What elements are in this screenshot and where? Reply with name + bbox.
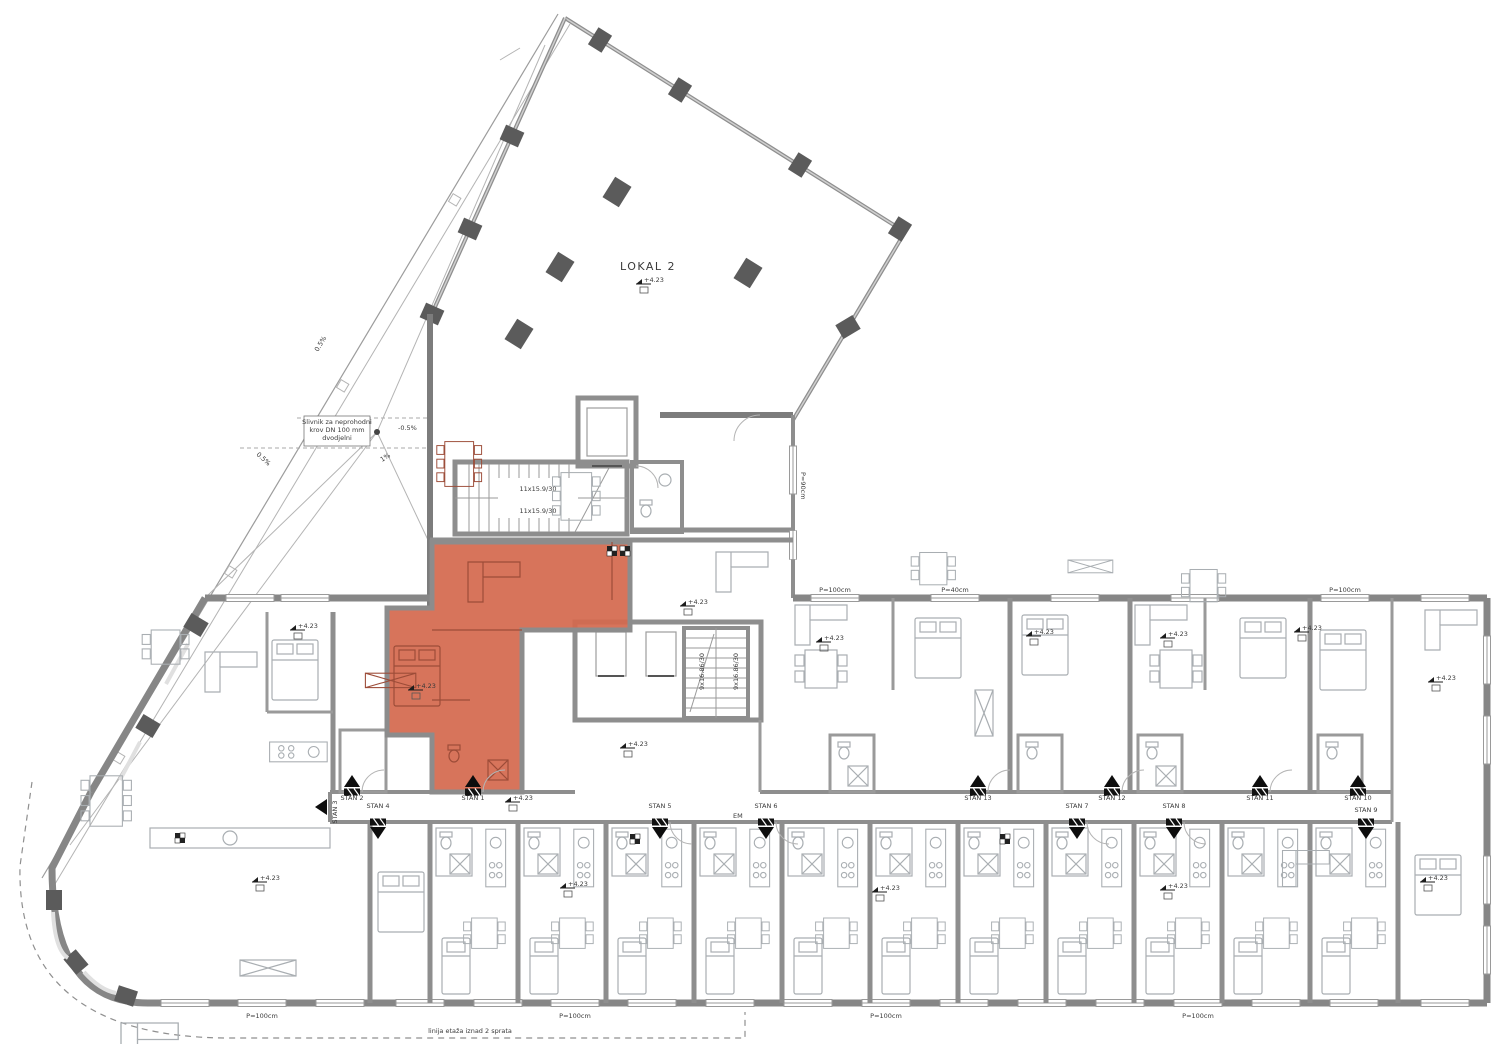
parapet-label: P=100cm (819, 586, 851, 594)
svg-text:+4.23: +4.23 (1168, 882, 1188, 890)
stan-3-entry[interactable]: STAN 3 (315, 799, 339, 824)
svg-text:+4.23: +4.23 (1168, 630, 1188, 638)
svg-text:STAN 1: STAN 1 (461, 794, 484, 802)
svg-text:+4.23: +4.23 (880, 884, 900, 892)
svg-text:+4.23: +4.23 (1302, 624, 1322, 632)
slope-label: 0.5% (313, 335, 328, 353)
drain-note-line2: krov DN 100 mm (309, 426, 364, 434)
floor-plan-canvas: Slivnik za neprohodni krov DN 100 mm dvo… (0, 0, 1500, 1044)
parapet-label: P=100cm (559, 1012, 591, 1020)
svg-text:STAN 8: STAN 8 (1162, 802, 1185, 810)
svg-text:STAN 6: STAN 6 (754, 802, 777, 810)
slope-label: -0.5% (398, 424, 417, 432)
svg-text:STAN 9: STAN 9 (1354, 806, 1377, 814)
corridor (330, 792, 1392, 822)
svg-text:+4.23: +4.23 (628, 740, 648, 748)
em-label: EM (733, 812, 743, 820)
svg-text:STAN 12: STAN 12 (1098, 794, 1125, 802)
svg-text:+4.23: +4.23 (1034, 628, 1054, 636)
apartments-top-band (142, 473, 1477, 792)
parapet-label: P=40cm (941, 586, 969, 594)
stair-label-lower: 9x16.86/30 (698, 653, 706, 690)
level-marker: +4.23 (505, 794, 533, 811)
svg-text:STAN 3: STAN 3 (331, 800, 339, 823)
svg-text:+4.23: +4.23 (1436, 674, 1456, 682)
svg-text:+4.23: +4.23 (568, 880, 588, 888)
svg-text:STAN 11: STAN 11 (1246, 794, 1273, 802)
svg-text:+4.23: +4.23 (260, 874, 280, 882)
highlight-region[interactable] (387, 542, 630, 792)
highlighted-apartment-stan-1[interactable]: +4.23 (365, 442, 630, 792)
stair-label-upper: 11x15.9/30 (519, 485, 556, 493)
slope-label: 0.5% (255, 451, 273, 468)
parapet-label: P=100cm (1329, 586, 1361, 594)
svg-text:+4.23: +4.23 (688, 598, 708, 606)
lokal2-area: P=90cm LOKAL 2 +4.23 (420, 18, 912, 608)
stair-label-upper: 11x15.9/30 (519, 507, 556, 515)
drain-note-line1: Slivnik za neprohodni (302, 418, 372, 426)
svg-text:+4.23: +4.23 (824, 634, 844, 642)
level-marker: +4.23 (636, 276, 664, 293)
parapet-label: P=90cm (799, 472, 807, 500)
stair-label-lower: 9x16.86/30 (732, 653, 740, 690)
floor-note: linija etaža iznad 2 sprata (428, 1027, 512, 1035)
svg-text:+4.23: +4.23 (416, 682, 436, 690)
svg-text:+4.23: +4.23 (298, 622, 318, 630)
svg-text:+4.23: +4.23 (1428, 874, 1448, 882)
drain-note-line3: dvodjelni (322, 434, 352, 442)
svg-text:STAN 4: STAN 4 (366, 802, 389, 810)
slope-label: 1% (379, 451, 392, 463)
roof-drain (374, 429, 380, 435)
lokal2-label: LOKAL 2 (620, 260, 676, 273)
svg-text:STAN 7: STAN 7 (1065, 802, 1088, 810)
svg-text:+4.23: +4.23 (513, 794, 533, 802)
svg-text:STAN 13: STAN 13 (964, 794, 991, 802)
svg-text:+4.23: +4.23 (644, 276, 664, 284)
floor-plan-svg: Slivnik za neprohodni krov DN 100 mm dvo… (0, 0, 1500, 1044)
svg-text:STAN 5: STAN 5 (648, 802, 671, 810)
svg-text:STAN 10: STAN 10 (1344, 794, 1371, 802)
parapet-label: P=100cm (246, 1012, 278, 1020)
parapet-label: P=100cm (870, 1012, 902, 1020)
level-marker: +4.23 (620, 740, 648, 757)
svg-text:STAN 2: STAN 2 (340, 794, 363, 802)
parapet-label: P=100cm (1182, 1012, 1214, 1020)
